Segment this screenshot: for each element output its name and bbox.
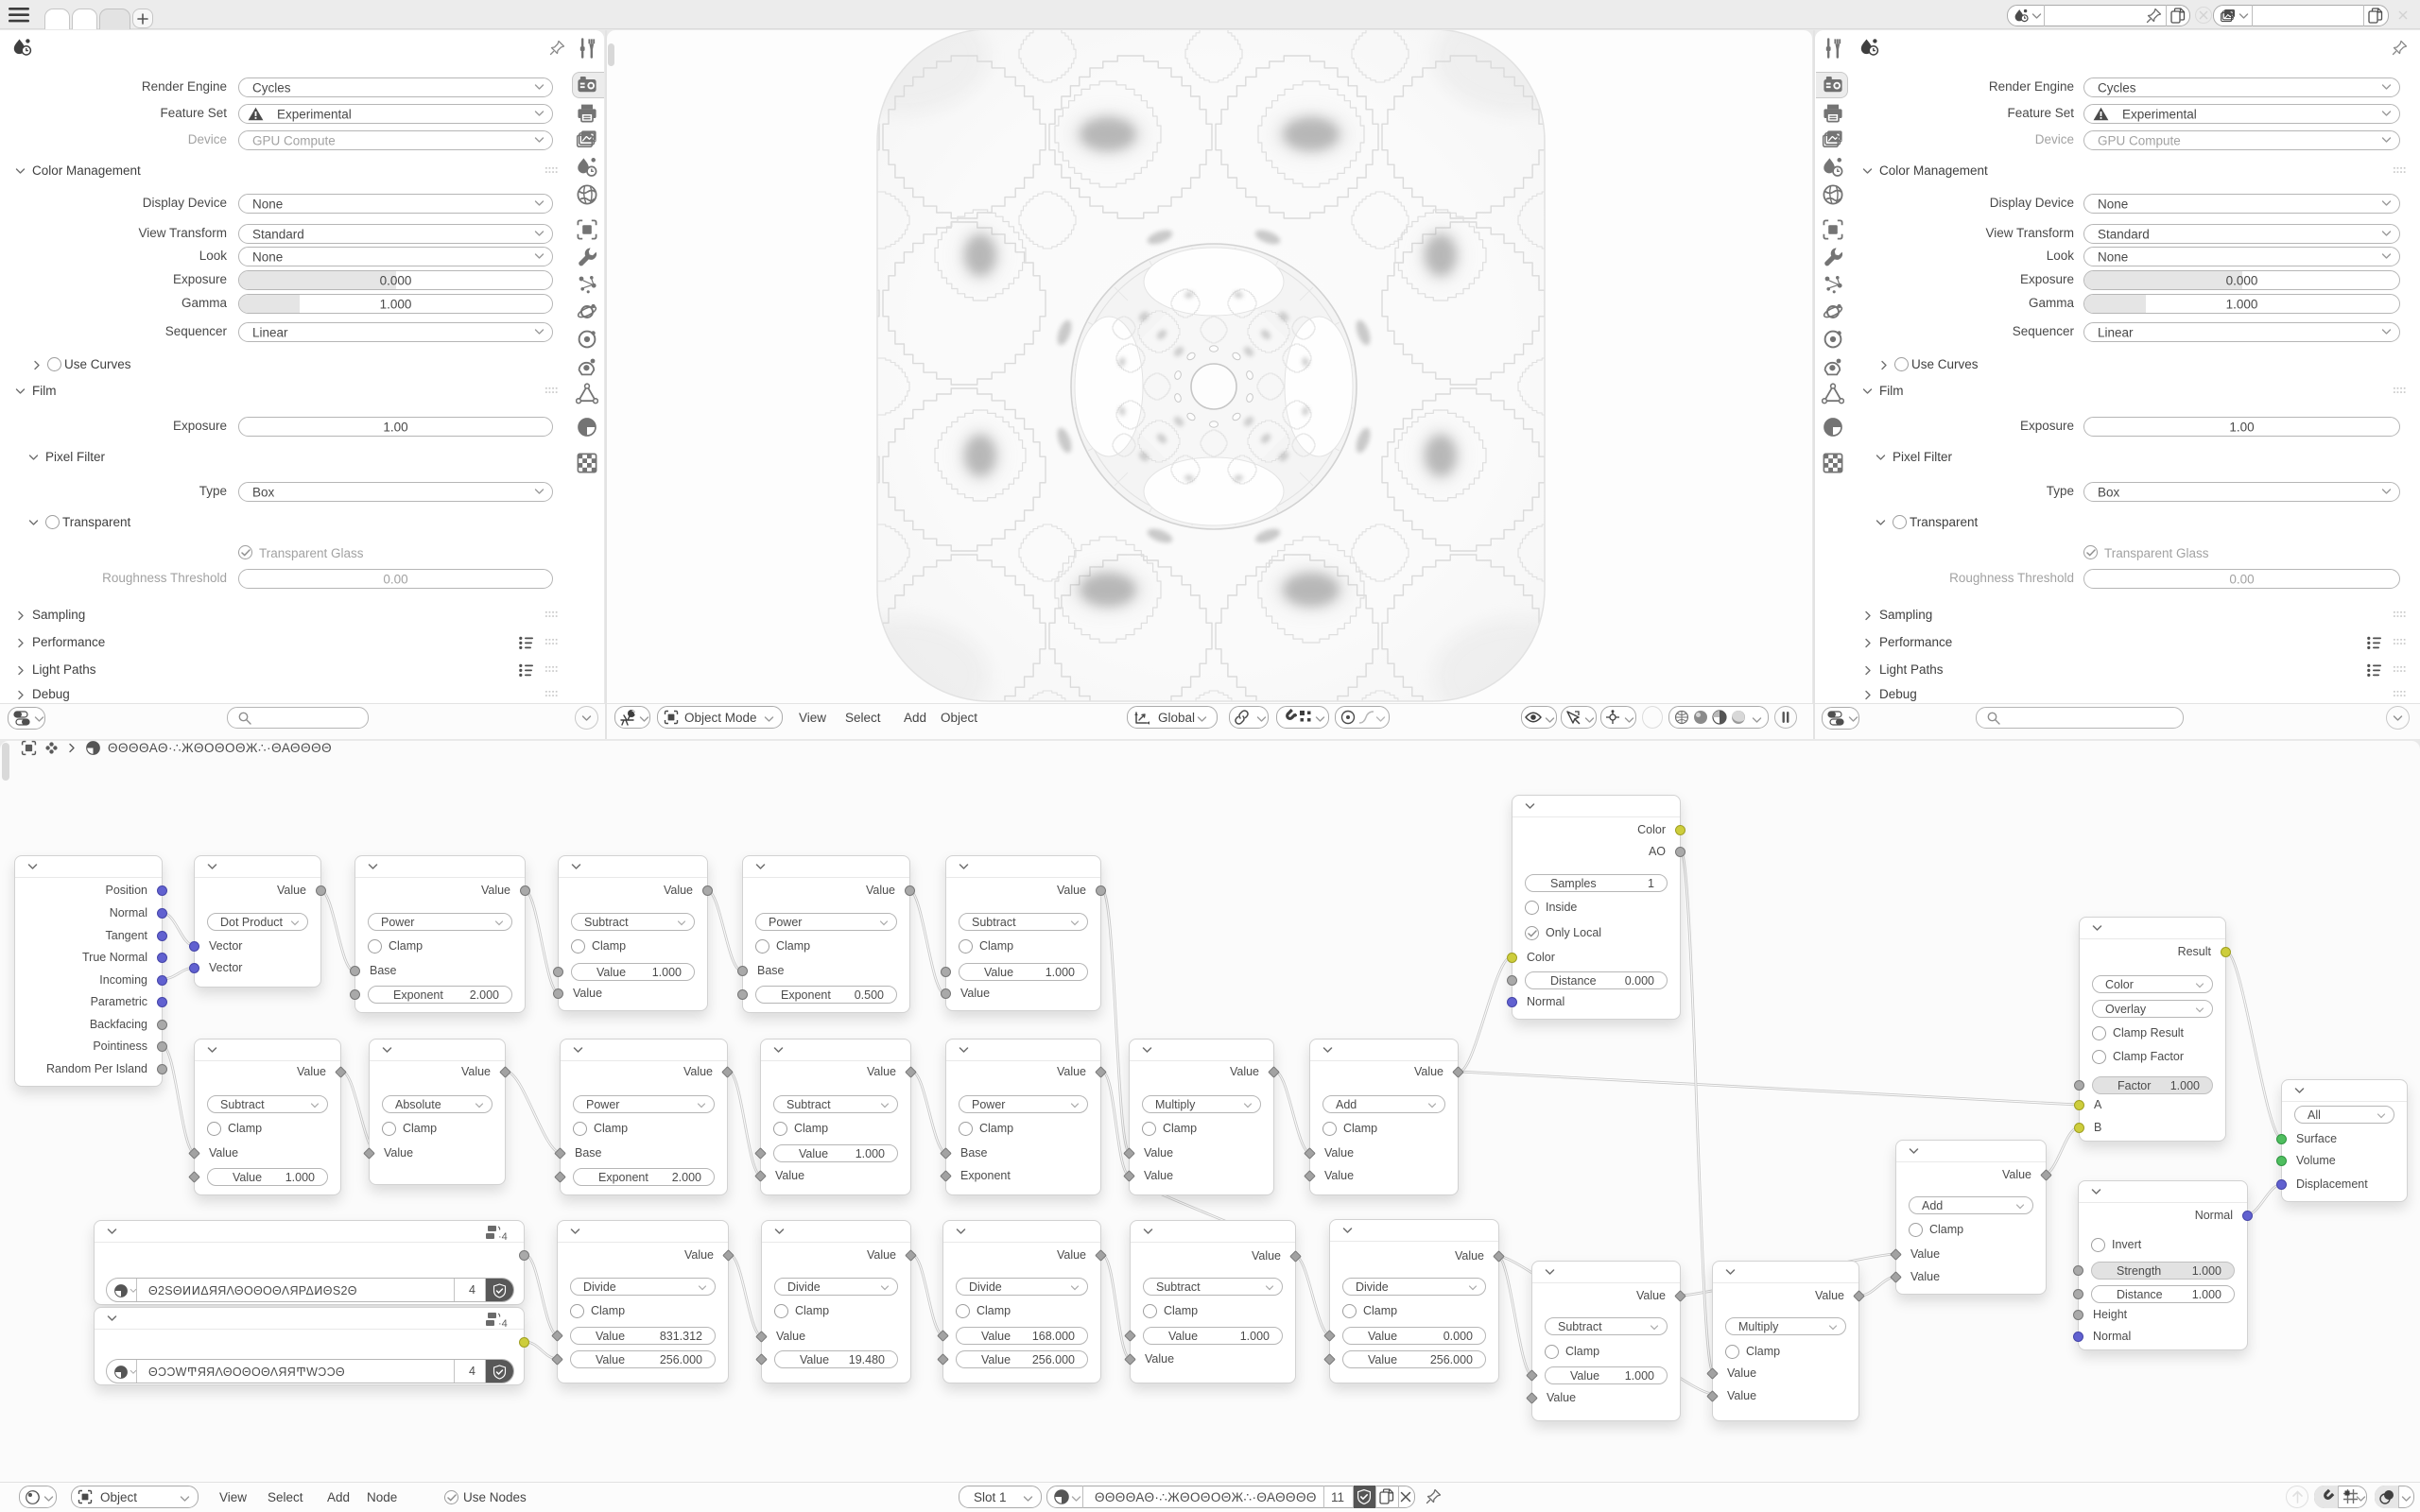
svg-text:·4: ·4 — [498, 1318, 508, 1329]
svg-text:·4: ·4 — [498, 1231, 508, 1242]
